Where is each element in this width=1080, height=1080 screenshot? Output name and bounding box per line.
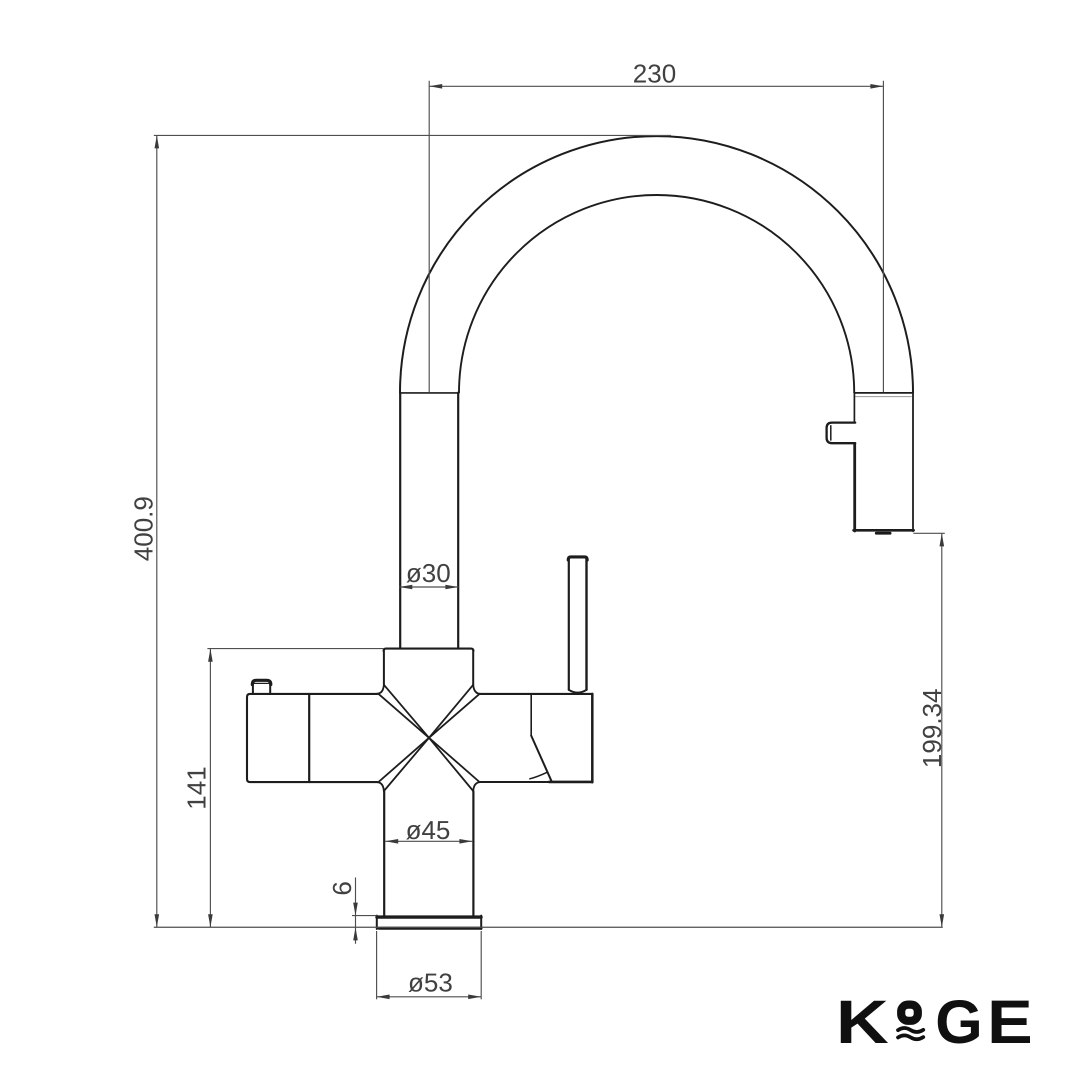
svg-text:199.34: 199.34 xyxy=(917,689,947,769)
svg-text:6: 6 xyxy=(327,881,357,895)
svg-text:141: 141 xyxy=(182,766,212,809)
svg-text:K: K xyxy=(836,989,889,1057)
svg-text:ø30: ø30 xyxy=(406,558,451,588)
svg-text:400.9: 400.9 xyxy=(128,496,158,561)
svg-text:ø53: ø53 xyxy=(408,967,453,997)
svg-text:230: 230 xyxy=(633,58,676,88)
svg-text:G: G xyxy=(935,988,982,1056)
svg-text:ø45: ø45 xyxy=(406,815,451,845)
svg-text:E: E xyxy=(987,987,1033,1056)
